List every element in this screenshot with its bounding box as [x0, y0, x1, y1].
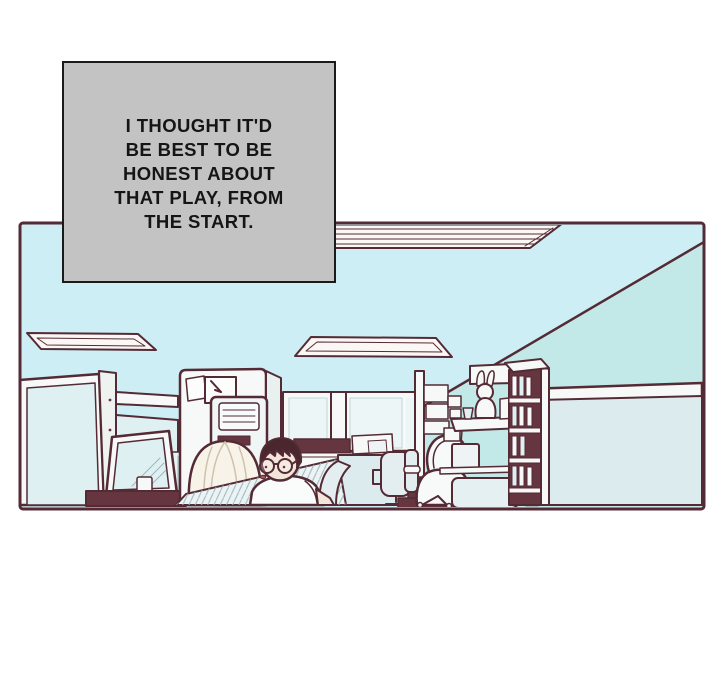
caption-line: HONEST ABOUT: [123, 162, 275, 186]
bookshelf: [505, 359, 549, 505]
ceiling-light-long: [330, 225, 561, 249]
caption-line: THE START.: [144, 210, 254, 234]
caption-box: I THOUGHT IT'D BE BEST TO BE HONEST ABOU…: [62, 61, 336, 283]
ceiling-light-left: [27, 333, 156, 350]
plant-pot: [463, 408, 473, 419]
caption-line: I THOUGHT IT'D: [126, 114, 273, 138]
right-partition: [526, 383, 702, 505]
left-cubicle-partition: [20, 371, 116, 505]
tilted-frame: [186, 376, 206, 401]
comic-page: I THOUGHT IT'D BE BEST TO BE HONEST ABOU…: [0, 0, 720, 700]
caption-line: THAT PLAY, FROM: [114, 186, 283, 210]
ceiling-light-center: [295, 337, 452, 357]
caption-line: BE BEST TO BE: [126, 138, 273, 162]
